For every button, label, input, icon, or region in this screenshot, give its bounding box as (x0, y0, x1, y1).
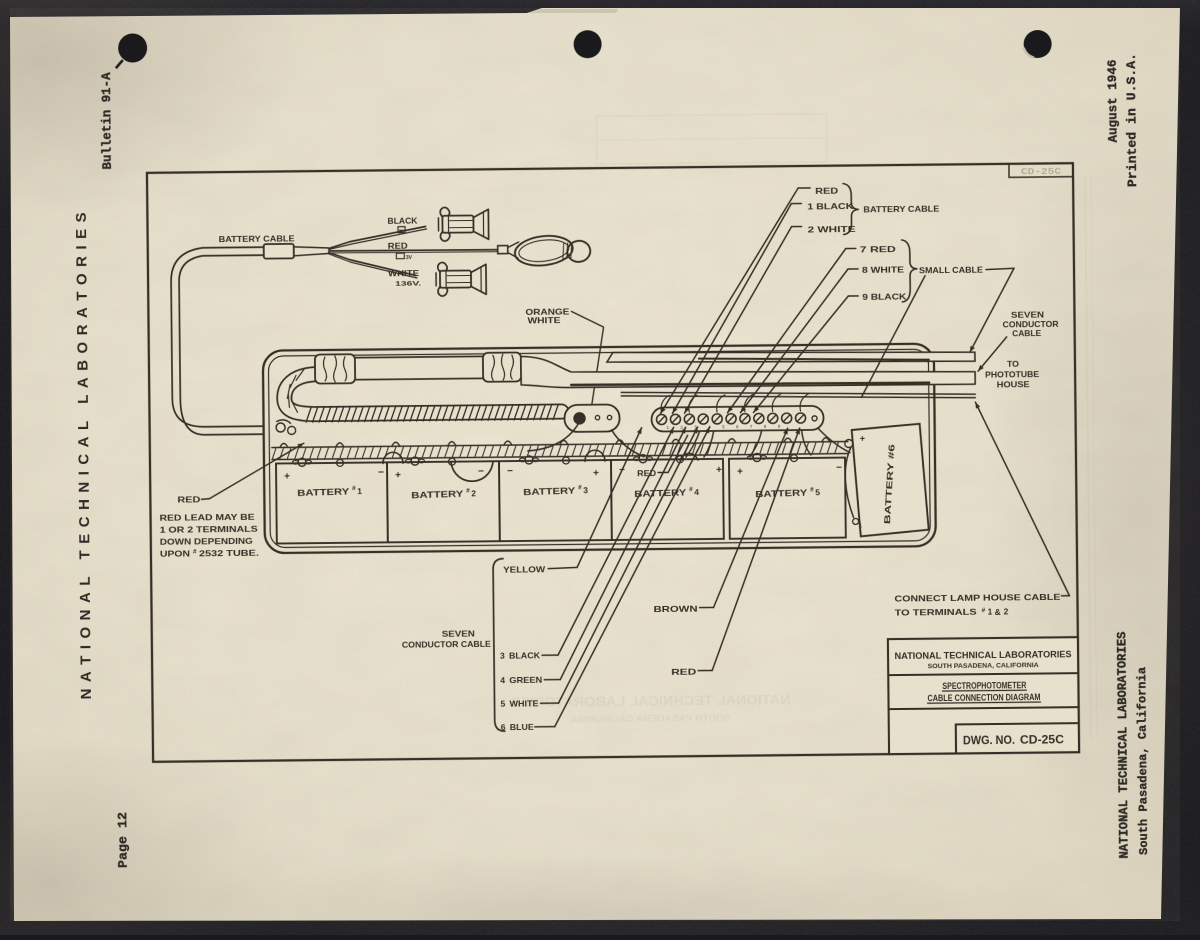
svg-text:#: # (689, 486, 693, 493)
svg-text:1 BLACK: 1 BLACK (807, 201, 854, 211)
svg-text:NATIONAL TECHNICAL LABORATORIE: NATIONAL TECHNICAL LABORATORIES (1115, 631, 1131, 859)
svg-text:1: 1 (988, 607, 993, 617)
svg-text:4: 4 (500, 675, 505, 685)
svg-text:3: 3 (500, 651, 505, 661)
svg-text:WHITE: WHITE (388, 268, 419, 278)
svg-text:1: 1 (357, 486, 362, 496)
svg-text:136V.: 136V. (395, 280, 421, 287)
svg-text:−: − (378, 467, 384, 478)
svg-text:DWG. NO.: DWG. NO. (963, 735, 1015, 748)
svg-text:+: + (716, 465, 722, 476)
svg-text:#: # (810, 486, 814, 493)
svg-text:#: # (352, 485, 356, 492)
svg-text:RED: RED (671, 667, 696, 677)
svg-text:−: − (836, 463, 842, 474)
svg-text:GREEN: GREEN (509, 675, 542, 685)
svg-text:#: # (193, 548, 197, 555)
svg-text:−: − (507, 466, 513, 477)
svg-text:RED LEAD MAY BE: RED LEAD MAY BE (160, 513, 256, 523)
svg-text:RED: RED (388, 241, 408, 251)
svg-text:4: 4 (694, 487, 699, 497)
svg-text:BLACK: BLACK (509, 650, 541, 660)
svg-text:#: # (982, 607, 986, 614)
svg-text:CONNECT LAMP HOUSE CABLE: CONNECT LAMP HOUSE CABLE (894, 592, 1061, 604)
svg-text:CABLE: CABLE (1012, 328, 1041, 338)
svg-text:SMALL CABLE: SMALL CABLE (919, 265, 983, 276)
svg-text:SEVEN: SEVEN (442, 628, 475, 638)
svg-text:1 OR 2 TERMINALS: 1 OR 2 TERMINALS (160, 525, 259, 535)
svg-text:+: + (737, 467, 743, 478)
svg-text:CABLE CONNECTION DIAGRAM: CABLE CONNECTION DIAGRAM (927, 692, 1040, 703)
svg-text:+: + (593, 468, 599, 479)
svg-text:August 1946: August 1946 (1105, 59, 1121, 142)
svg-text:2: 2 (471, 488, 476, 498)
svg-text:PHOTOTUBE: PHOTOTUBE (985, 369, 1039, 380)
svg-text:−: − (478, 466, 484, 477)
svg-text:South Pasadena, California: South Pasadena, California (1135, 666, 1151, 855)
svg-text:9 BLACK: 9 BLACK (862, 291, 907, 301)
svg-text:SPECTROPHOTOMETER: SPECTROPHOTOMETER (942, 680, 1026, 691)
svg-text:RED: RED (177, 494, 200, 504)
svg-text:3V: 3V (406, 255, 413, 261)
svg-text:BATTERY CABLE: BATTERY CABLE (219, 233, 295, 244)
svg-text:BROWN: BROWN (653, 604, 697, 614)
svg-text:CONDUCTOR CABLE: CONDUCTOR CABLE (402, 639, 491, 650)
svg-text:3: 3 (583, 485, 588, 495)
svg-text:RED: RED (815, 186, 838, 196)
svg-text:BLACK: BLACK (387, 216, 418, 226)
svg-text:8 WHITE: 8 WHITE (862, 264, 904, 274)
svg-text:BATTERY CABLE: BATTERY CABLE (863, 204, 939, 215)
svg-text:BATTERY: BATTERY (523, 486, 575, 498)
svg-text:RED: RED (637, 468, 656, 478)
svg-text:CD-25C: CD-25C (1021, 167, 1062, 177)
svg-text:5: 5 (500, 699, 505, 709)
svg-text:WHITE: WHITE (527, 315, 560, 325)
svg-text:#: # (466, 487, 470, 494)
svg-text:&: & (995, 607, 1001, 617)
svg-text:Page 12: Page 12 (115, 812, 131, 868)
svg-text:+: + (395, 470, 401, 481)
svg-text:WHITE: WHITE (509, 698, 538, 708)
svg-text:TO TERMINALS: TO TERMINALS (895, 607, 978, 618)
svg-text:HOUSE: HOUSE (997, 379, 1030, 389)
svg-text:UPON: UPON (160, 549, 190, 558)
svg-text:BATTERY: BATTERY (297, 486, 349, 498)
svg-text:5: 5 (815, 487, 820, 497)
svg-text:2532 TUBE.: 2532 TUBE. (199, 549, 259, 559)
svg-text:NATIONAL TECHNICAL LABORATORIE: NATIONAL TECHNICAL LABORATORIES (894, 649, 1071, 661)
svg-text:YELLOW: YELLOW (503, 564, 546, 574)
svg-text:#: # (578, 484, 582, 491)
svg-text:Printed in U.S.A.: Printed in U.S.A. (1124, 53, 1140, 187)
svg-text:+: + (860, 433, 865, 443)
svg-text:2: 2 (1004, 606, 1009, 616)
svg-text:CD-25C: CD-25C (1020, 734, 1064, 746)
svg-text:TO: TO (1007, 359, 1019, 369)
svg-text:BLUE: BLUE (510, 722, 534, 732)
svg-text:BATTERY: BATTERY (411, 489, 463, 501)
svg-text:DOWN DEPENDING: DOWN DEPENDING (160, 537, 253, 547)
svg-text:6: 6 (501, 722, 506, 732)
svg-text:+: + (284, 471, 290, 482)
svg-text:Bulletin 91-A: Bulletin 91-A (99, 72, 115, 169)
svg-text:7 RED: 7 RED (860, 244, 896, 254)
svg-text:SOUTH PASADENA, CALIFORNIA: SOUTH PASADENA, CALIFORNIA (928, 662, 1039, 670)
